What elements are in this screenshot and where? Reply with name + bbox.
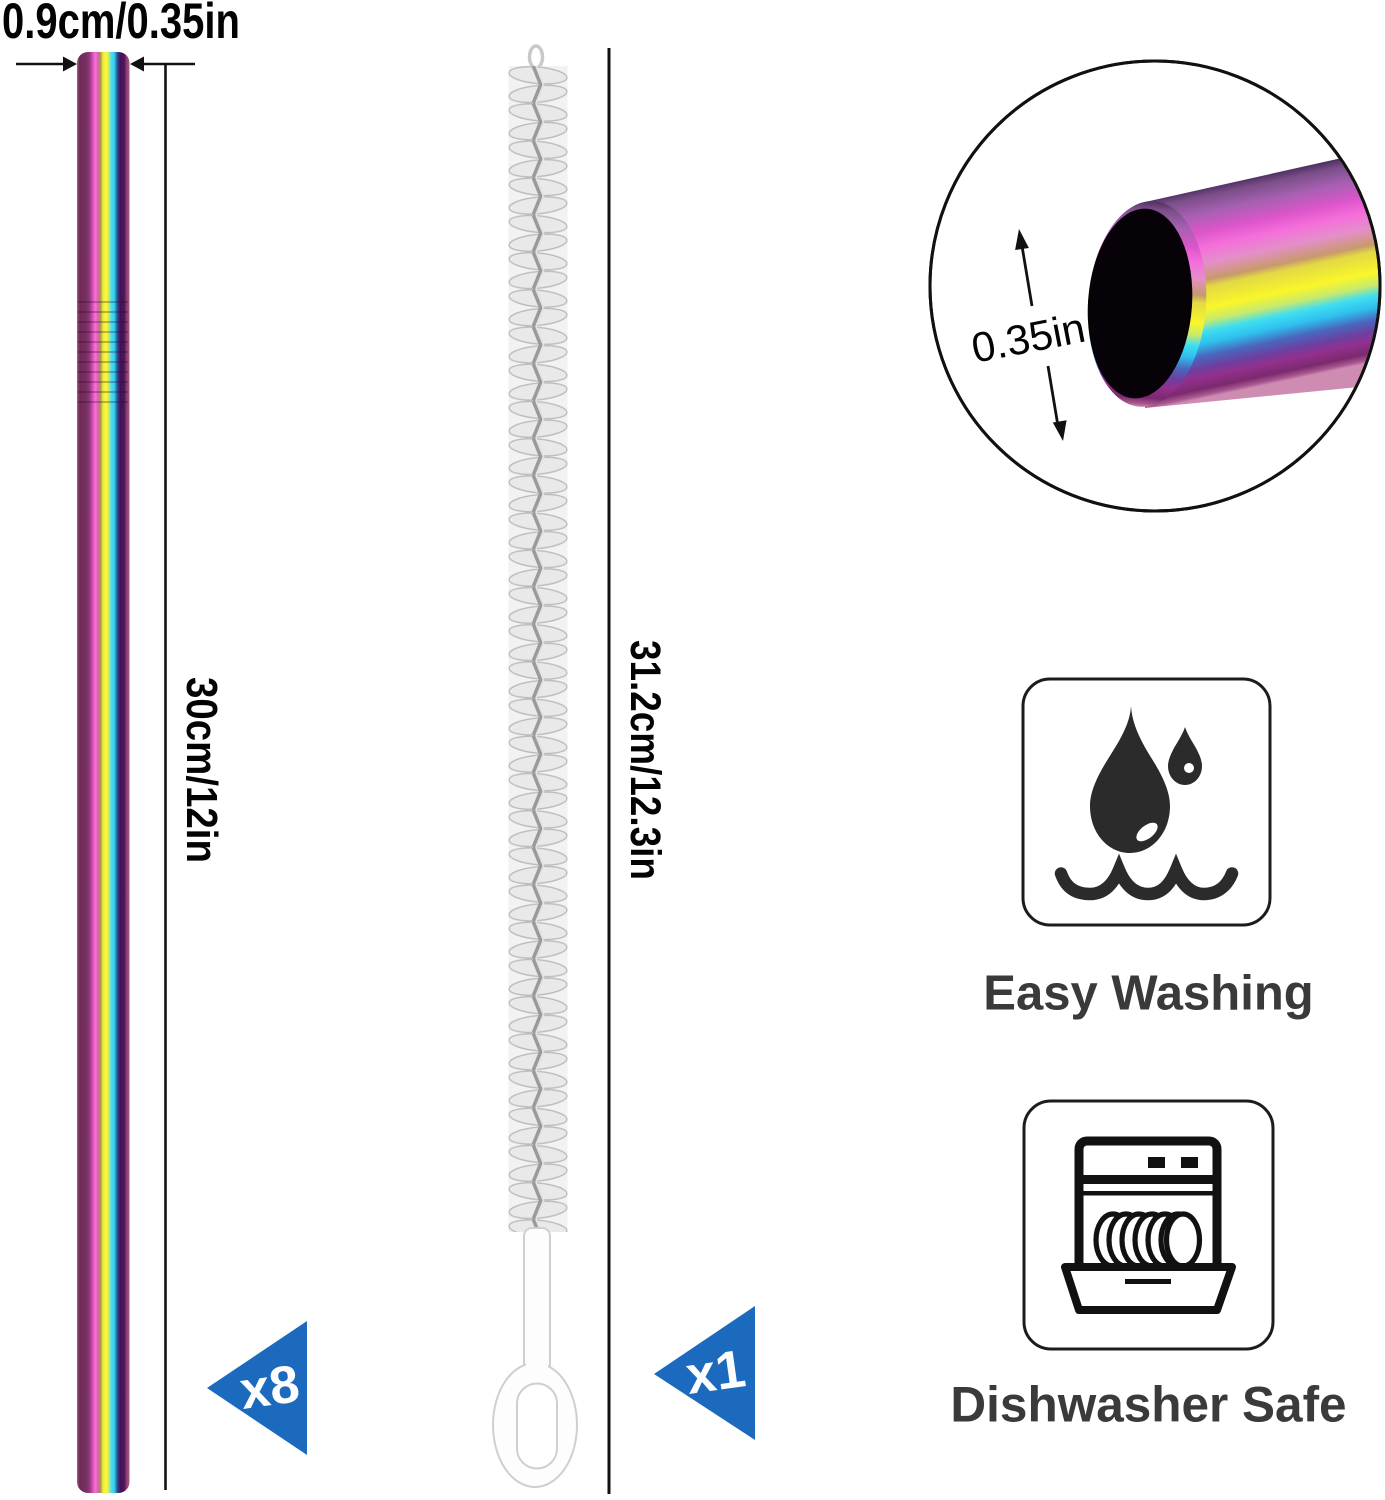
svg-text:x8: x8 — [236, 1354, 303, 1421]
svg-text:30cm/12in: 30cm/12in — [177, 677, 226, 863]
svg-text:Dishwasher Safe: Dishwasher Safe — [950, 1376, 1346, 1432]
svg-text:x1: x1 — [682, 1339, 749, 1406]
svg-text:Easy Washing: Easy Washing — [983, 967, 1313, 1021]
svg-text:31.2cm/12.3in: 31.2cm/12.3in — [621, 640, 668, 880]
svg-text:0.9cm/0.35in: 0.9cm/0.35in — [2, 0, 240, 49]
